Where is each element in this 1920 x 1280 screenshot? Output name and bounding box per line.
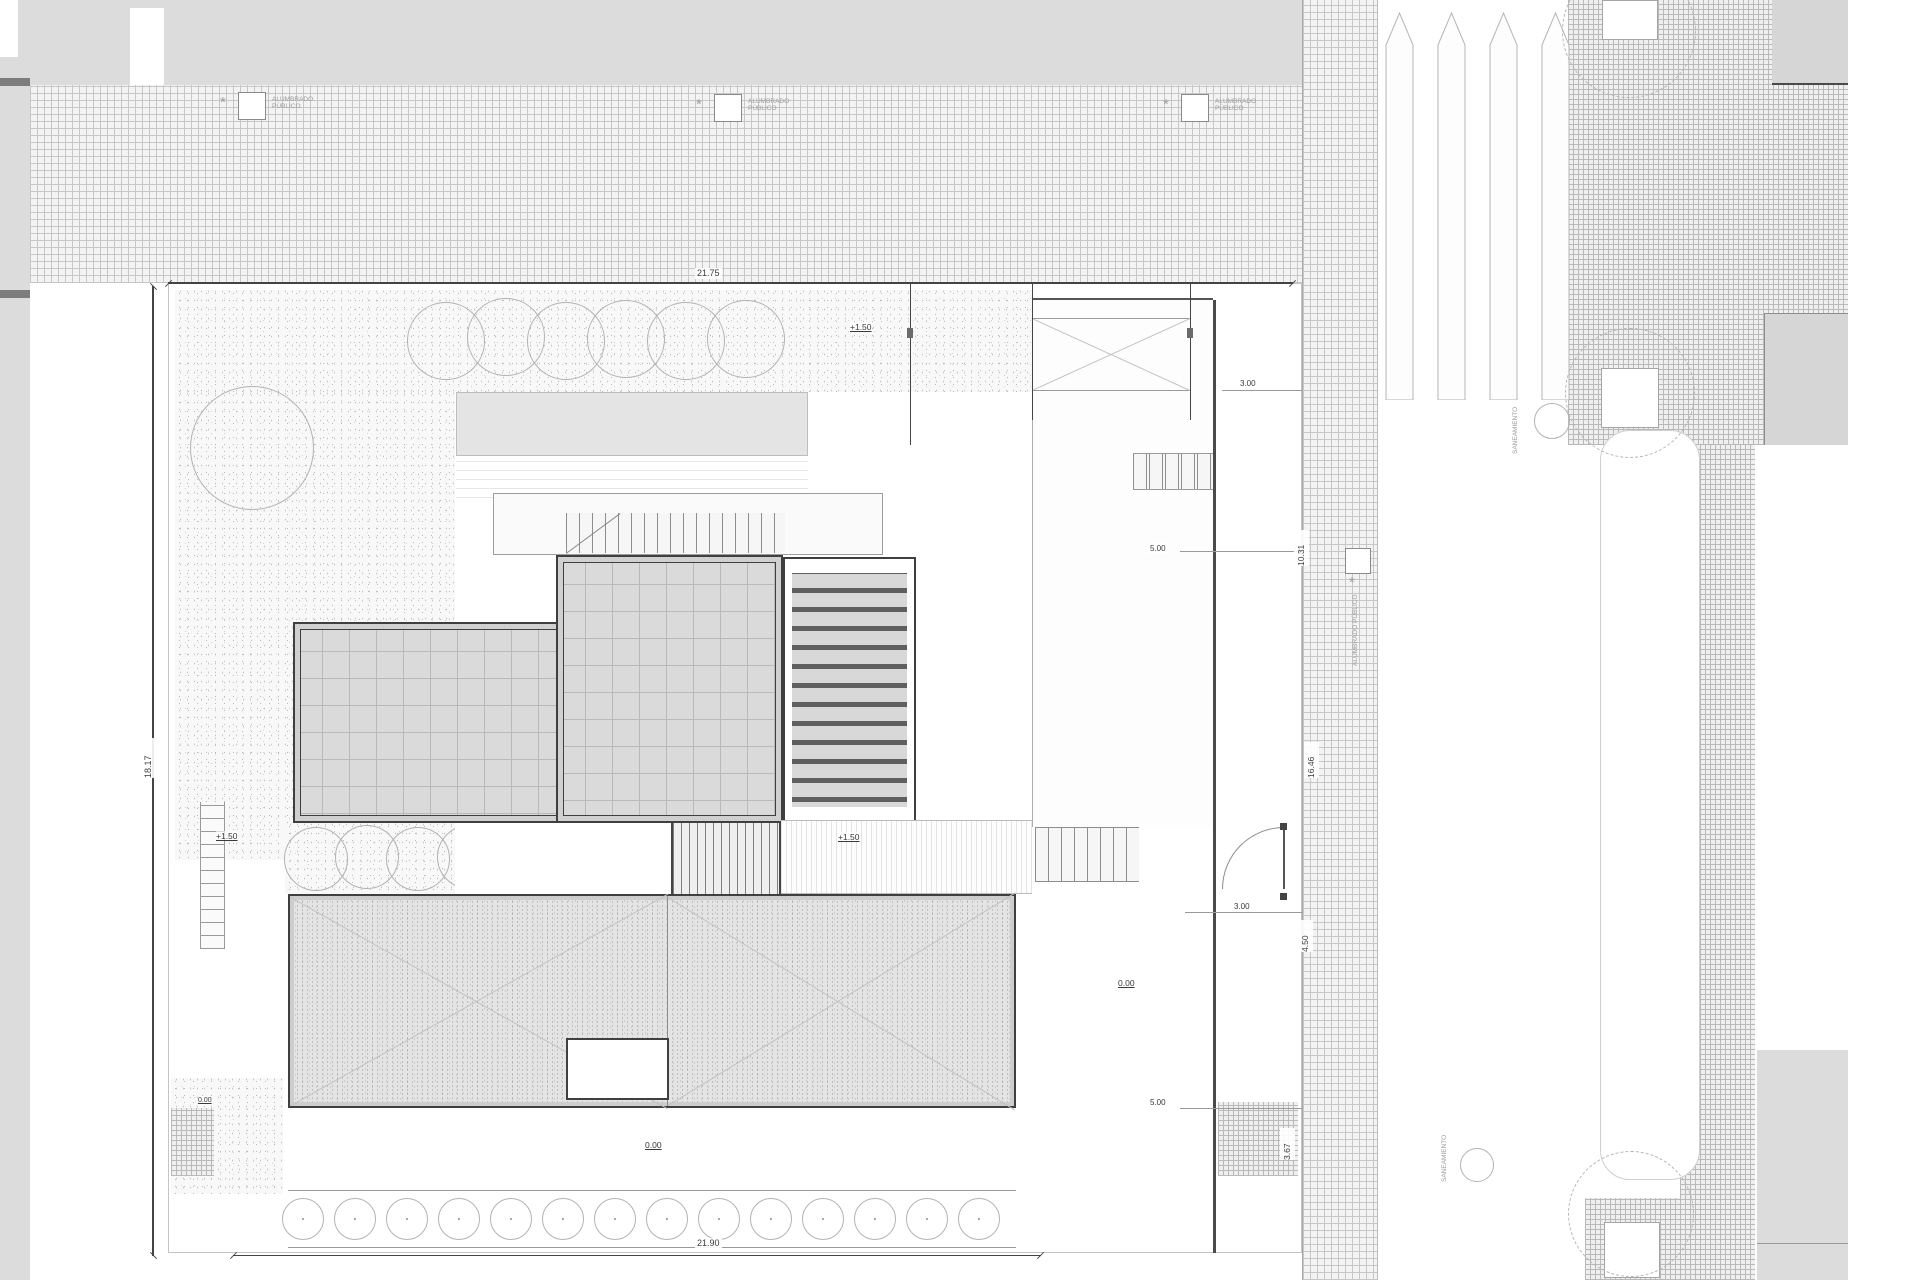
level-label-deck: +1.50: [838, 832, 860, 842]
planter-strip-bottom-line: [288, 1247, 1016, 1248]
tree-circle: [958, 1198, 1000, 1240]
neighbor-building-mid-right: [1764, 313, 1848, 445]
upper-roof-stripes: [456, 456, 808, 498]
ramp-edge-bottom: [1032, 390, 1190, 391]
side-ladder-stair: [200, 802, 225, 949]
tree-canopy-circle: [1568, 1151, 1694, 1277]
big-tree-circle: [190, 386, 314, 510]
dimension-top: 21.75: [695, 268, 722, 279]
dimension-right-10-31: 10.31: [1294, 530, 1309, 566]
skylight-roof-main: [556, 555, 783, 823]
top-sidewalk-paving: [30, 85, 1302, 283]
dim-line-small: [1180, 1108, 1302, 1109]
ramp-edge-top: [1032, 318, 1190, 319]
left-curb-mark-2: [0, 290, 30, 298]
site-plan-drawing: SANEAMIENTO SANEAMIENTO * ALUMBRADO PÚBL…: [0, 0, 1920, 1280]
level-label-garden: +1.50: [216, 831, 238, 841]
top-street-band: [18, 0, 1302, 85]
tree-circle: [542, 1198, 584, 1240]
pool-step: [566, 1038, 669, 1100]
dimension-right-16-46: 16.46: [1304, 742, 1319, 778]
dimension-line-top: [168, 282, 1293, 284]
tree-circle: [802, 1198, 844, 1240]
tree-circle: [707, 300, 785, 378]
planter-bottom-left: [171, 1108, 214, 1176]
reference-line: [1190, 283, 1191, 420]
tree-circle: [282, 1198, 324, 1240]
terrace-deck: [781, 820, 1032, 894]
dimension-line-bottom: [233, 1255, 1041, 1257]
dimension-right-3-67: 3.67: [1280, 1128, 1295, 1160]
level-label-ground: 0.00: [645, 1140, 662, 1150]
dimension-5-00-upper: 5.00: [1148, 543, 1168, 554]
lamp-rays-icon: *: [696, 100, 702, 110]
upper-roof-plane: [456, 392, 808, 456]
neighbor-building-top-right: [1772, 0, 1848, 85]
reference-line: [1032, 283, 1033, 420]
pergola-slat-roof: [783, 557, 916, 823]
right-terrace-top-wall: [1032, 298, 1213, 300]
gate-leaf: [1283, 827, 1285, 889]
street-lamp-icon: [238, 92, 266, 120]
street-lamp-label: ALUMBRADO PÚBLICO: [748, 98, 796, 113]
street-lamp-label-vertical: ALUMBRADO PÚBLICO: [1352, 596, 1369, 666]
bottom-right-curb-line: [1757, 1243, 1848, 1244]
level-label-courtyard: 0.00: [1118, 978, 1135, 988]
tree-canopy-circle: [1565, 328, 1695, 458]
level-label-left-small: 0.00: [198, 1096, 212, 1106]
reference-tick: [1187, 328, 1193, 338]
dim-line-small: [1185, 912, 1302, 913]
street-lamp-label: ALUMBRADO PÚBLICO: [1215, 98, 1263, 113]
stair-right-top: [1133, 453, 1213, 490]
street-lamp-label: ALUMBRADO PÚBLICO: [272, 96, 320, 111]
top-street-gap: [130, 8, 164, 85]
tree-circle: [438, 1198, 480, 1240]
courtyard: [1016, 894, 1213, 1190]
street-lamp-icon: [714, 94, 742, 122]
stair-top-treads: [566, 513, 785, 553]
gate-hinge: [1280, 823, 1287, 830]
dimension-3-00-lower: 3.00: [1232, 901, 1252, 912]
tree-circle: [750, 1198, 792, 1240]
sewer-label-upper: SANEAMIENTO: [1512, 390, 1524, 454]
tree-circle: [906, 1198, 948, 1240]
skylight-roof-west-wing: [293, 622, 566, 823]
dimension-3-00-top: 3.00: [1238, 378, 1258, 389]
left-curb-mark-1: [0, 78, 30, 86]
dim-line-small: [1222, 390, 1302, 391]
reference-tick: [907, 328, 913, 338]
reference-line: [910, 283, 911, 445]
street-lamp-icon: [1345, 548, 1371, 574]
sewer-label-lower: SANEAMIENTO: [1441, 1118, 1453, 1182]
tree-circle: [854, 1198, 896, 1240]
dim-line-small: [1180, 551, 1302, 552]
gate-hinge: [1280, 893, 1287, 900]
planter-strip-top-line: [288, 1190, 1016, 1191]
tree-circle: [594, 1198, 636, 1240]
tree-circle: [334, 1198, 376, 1240]
dimension-right-4-50: 4.50: [1298, 920, 1313, 952]
stair-lower: [671, 823, 781, 900]
neighbor-building-bottom-right: [1757, 1050, 1848, 1280]
left-street-column: [0, 57, 30, 1280]
stair-mid-right: [1035, 827, 1139, 882]
tree-circle: [646, 1198, 688, 1240]
dimension-5-00-lower: 5.00: [1148, 1097, 1168, 1108]
tree-circle: [490, 1198, 532, 1240]
dimension-left: 18.17: [141, 738, 156, 778]
tree-circle: [386, 1198, 428, 1240]
tree-circle: [698, 1198, 740, 1240]
east-boundary-wall: [1213, 300, 1216, 1253]
crosswalk-arrow-strips: [1380, 5, 1580, 400]
dimension-bottom: 21.90: [695, 1238, 722, 1249]
street-median: [1600, 430, 1700, 1180]
manhole-circle: [1534, 403, 1570, 439]
lamp-rays-icon: *: [1349, 578, 1355, 588]
right-terrace: [1032, 300, 1213, 827]
manhole-circle: [1460, 1148, 1494, 1182]
level-label-garden-top: +1.50: [850, 322, 872, 332]
lamp-rays-icon: *: [1163, 100, 1169, 110]
lamp-rays-icon: *: [220, 98, 226, 108]
street-lamp-icon: [1181, 94, 1209, 122]
